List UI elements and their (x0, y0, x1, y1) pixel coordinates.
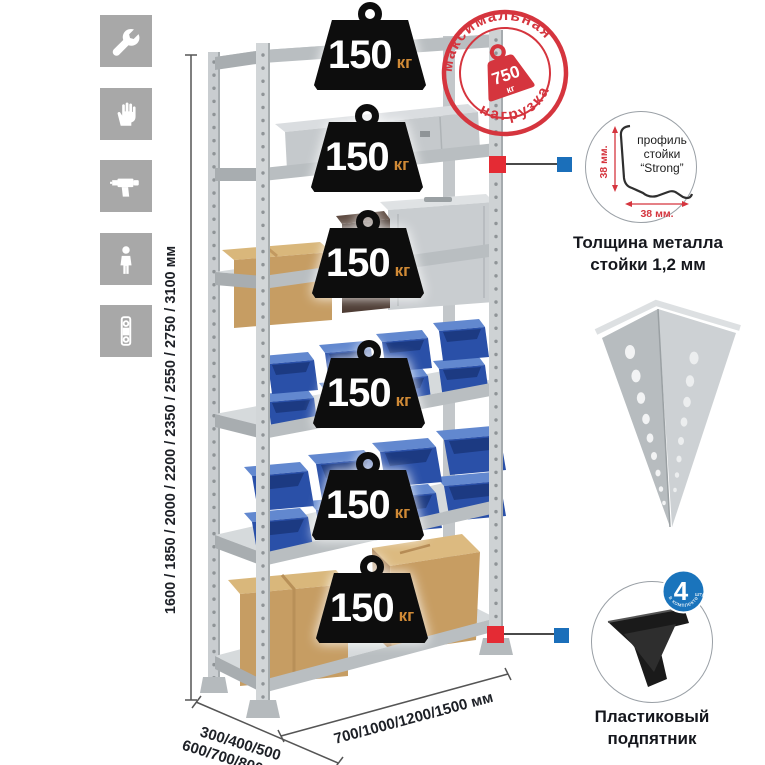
svg-text:стойки: стойки (644, 147, 681, 161)
wrench-icon (100, 15, 152, 67)
load-unit: кг (395, 503, 411, 523)
top-callout-blue-marker (557, 157, 572, 172)
foot-caption-line1: Пластиковый (567, 706, 737, 728)
foot-caption-line2: подпятник (567, 728, 737, 750)
load-value: 150 (330, 586, 394, 631)
load-value: 150 (325, 135, 389, 180)
load-unit: кг (394, 155, 410, 175)
profile-detail-circle: 38 мм. 38 мм. профиль стойки “Strong” (585, 111, 697, 223)
shelf6-load-badge: 150кг (316, 555, 428, 643)
load-unit: кг (399, 606, 415, 626)
load-value: 150 (328, 33, 392, 78)
shelf5-load-badge: 150кг (312, 452, 424, 540)
max-load-stamp: максимальная нагрузка 750 кг (438, 6, 572, 140)
top-callout-line (506, 163, 557, 165)
shelf3-load-badge: 150кг (312, 210, 424, 298)
foot-caption: Пластиковый подпятник (567, 706, 737, 750)
shelf4-load-badge: 150кг (313, 340, 425, 428)
shelf2-load-badge: 150кг (311, 104, 423, 192)
top-callout-red-marker (489, 156, 506, 173)
profile-dim-horizontal: 38 мм. (640, 208, 673, 220)
load-unit: кг (396, 391, 412, 411)
svg-text:профиль: профиль (637, 133, 687, 147)
load-unit: кг (397, 53, 413, 73)
shelving-infographic: 1600 / 1850 / 2000 / 2200 / 2350 / 2550 … (0, 0, 765, 765)
profile-label: профиль стойки “Strong” (637, 133, 687, 175)
level-icon (100, 305, 152, 357)
upright-profile-photo (596, 303, 740, 527)
profile-dim-vertical: 38 мм. (598, 145, 610, 178)
gloves-icon (100, 88, 152, 140)
load-unit: кг (395, 261, 411, 281)
profile-cross-section: 38 мм. 38 мм. профиль стойки “Strong” (586, 112, 695, 221)
load-value: 150 (326, 483, 390, 528)
bottom-callout-blue-marker (554, 628, 569, 643)
load-value: 150 (327, 371, 391, 416)
height-dimension-label: 1600 / 1850 / 2000 / 2200 / 2350 / 2550 … (162, 246, 180, 614)
profile-caption-line1: Толщина металла (563, 232, 733, 254)
shelf1-load-badge: 150кг (314, 2, 426, 90)
drill-icon (100, 160, 152, 212)
load-value: 150 (326, 241, 390, 286)
stamp-weight-icon: 750 кг (473, 39, 535, 103)
bottom-callout-red-marker (487, 626, 504, 643)
person-icon (100, 233, 152, 285)
svg-text:“Strong”: “Strong” (640, 161, 683, 175)
profile-caption: Толщина металла стойки 1,2 мм (563, 232, 733, 276)
quantity-badge: 4 штуки в комплекте (661, 569, 706, 614)
bottom-callout-line (504, 633, 554, 635)
profile-caption-line2: стойки 1,2 мм (563, 254, 733, 276)
